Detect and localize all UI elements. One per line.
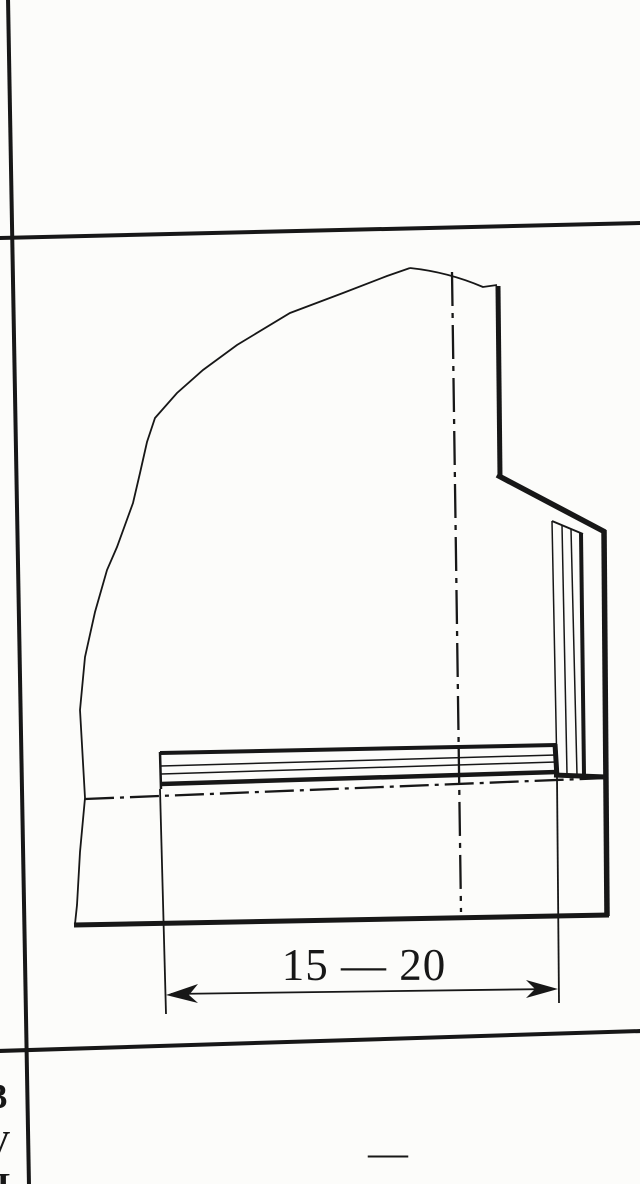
- v-strip-thick-line: [581, 533, 584, 775]
- v-strip-line-3: [571, 529, 577, 775]
- centerline-horizontal: [85, 778, 606, 799]
- table-border-bottom: [0, 1031, 640, 1051]
- part-right-edge: [604, 530, 607, 916]
- centerline-vertical: [452, 272, 461, 912]
- h-strip-left-end: [160, 752, 161, 789]
- dimension-label: 15 — 20: [282, 940, 447, 990]
- dim-extension-right: [557, 777, 559, 1003]
- scanned-page: 15 — 20 — 3 V L: [0, 0, 640, 1184]
- table-border-left: [8, 0, 29, 1184]
- h-strip-right-end: [555, 744, 557, 777]
- clipped-glyph-2: V: [0, 1124, 10, 1163]
- figure-canvas: 15 — 20 — 3 V L: [0, 0, 640, 1184]
- dim-extension-left: [160, 789, 166, 1014]
- table-empty-cell-dash: —: [367, 1130, 409, 1175]
- v-strip-top-edge: [552, 521, 583, 534]
- part-top-contour: [410, 268, 497, 287]
- v-strip-bottom-shelf: [554, 775, 606, 777]
- clipped-glyph-1: 3: [0, 1077, 8, 1116]
- table-border-top: [0, 223, 640, 238]
- clipped-glyph-3: L: [0, 1166, 20, 1184]
- part-bottom-edge: [74, 915, 609, 925]
- h-strip-top-edge: [160, 745, 556, 753]
- part-break-outline: [75, 268, 410, 924]
- part-chamfer-edge: [497, 475, 605, 532]
- v-strip-line-1: [552, 521, 557, 773]
- part-step-vertical-edge: [498, 286, 500, 477]
- v-strip-line-2: [562, 525, 567, 774]
